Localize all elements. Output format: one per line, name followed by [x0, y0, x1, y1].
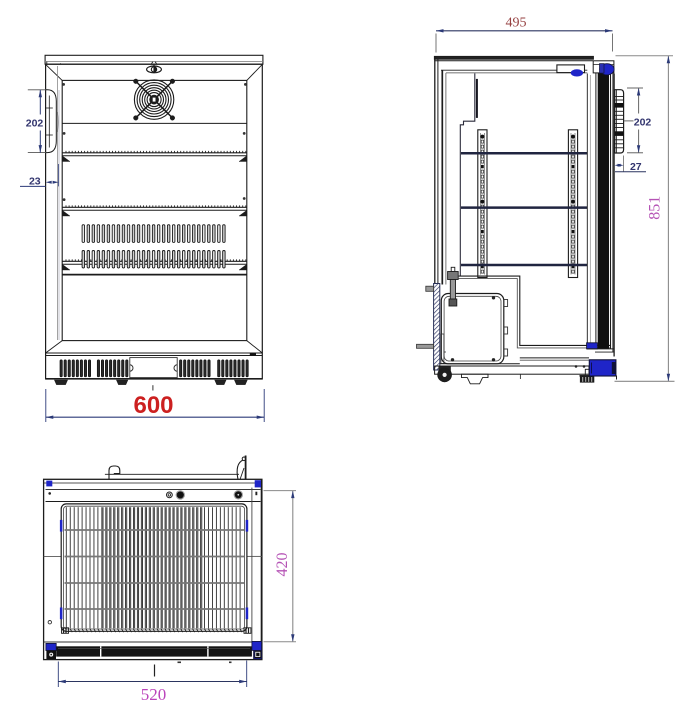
svg-text:202: 202 — [26, 117, 44, 129]
svg-text:23: 23 — [29, 175, 41, 187]
svg-text:27: 27 — [630, 161, 642, 173]
svg-text:202: 202 — [634, 116, 652, 128]
svg-text:495: 495 — [506, 16, 527, 31]
svg-text:520: 520 — [141, 685, 167, 704]
svg-text:420: 420 — [274, 553, 291, 577]
svg-text:600: 600 — [133, 392, 173, 419]
svg-text:851: 851 — [647, 196, 664, 220]
